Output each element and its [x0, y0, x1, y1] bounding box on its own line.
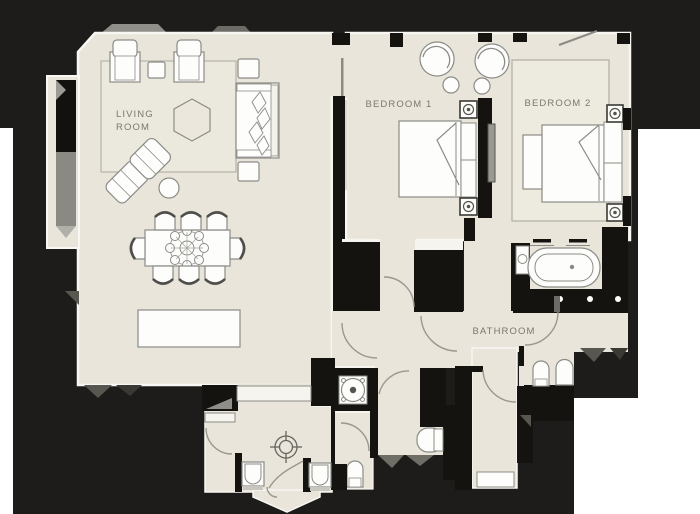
svg-text:LIVING: LIVING	[116, 109, 154, 120]
svg-text:BEDROOM 1: BEDROOM 1	[366, 99, 433, 110]
svg-text:ROOM: ROOM	[116, 122, 150, 133]
svg-text:BATHROOM: BATHROOM	[473, 326, 536, 337]
svg-text:BEDROOM 2: BEDROOM 2	[525, 98, 592, 109]
